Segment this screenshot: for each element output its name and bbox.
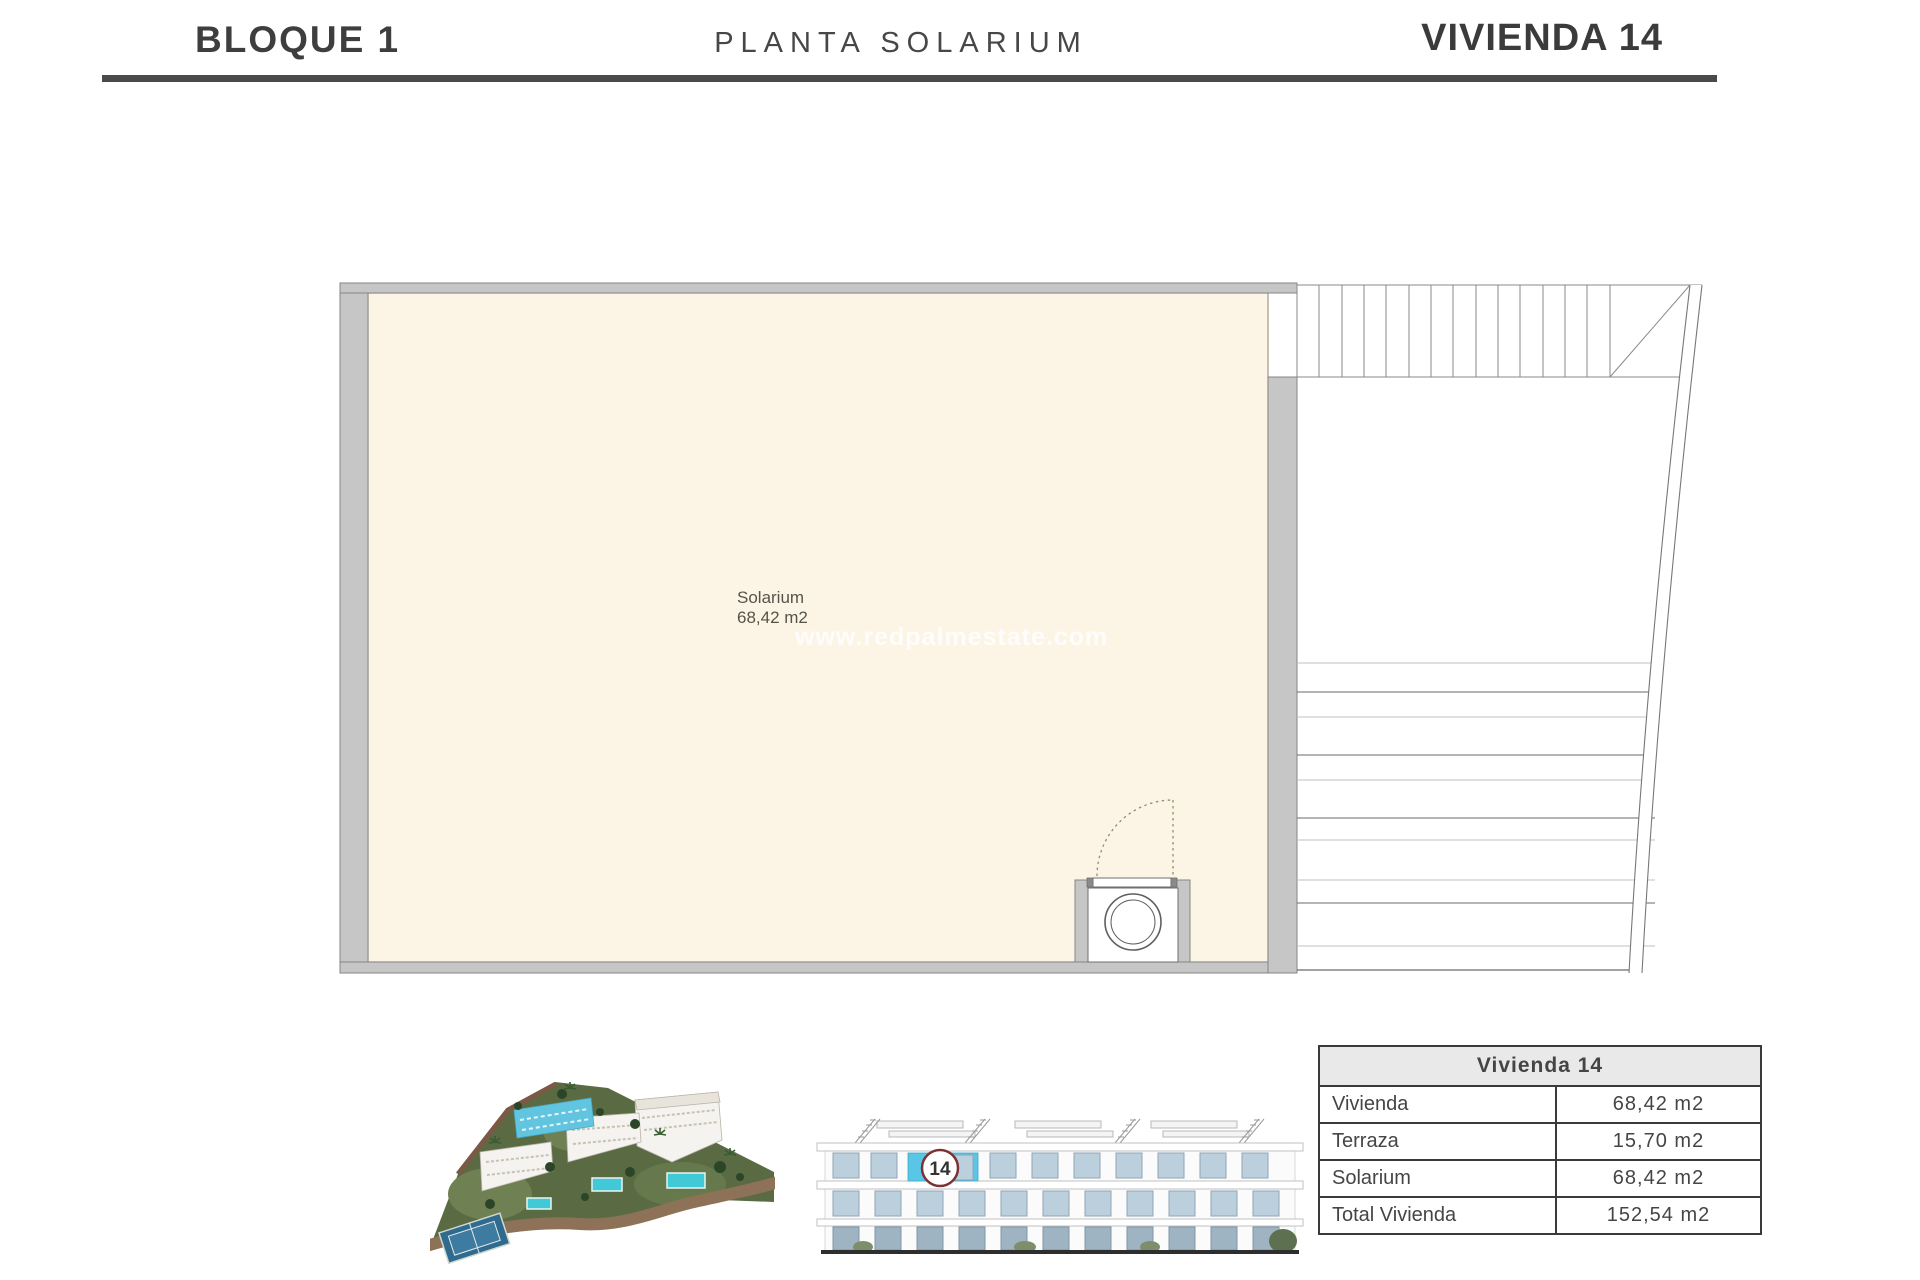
table-title: Vivienda 14	[1319, 1046, 1761, 1086]
room-label: Solarium 68,42 m2	[737, 588, 808, 627]
room-name-text: Solarium	[737, 588, 804, 607]
header-rule	[102, 75, 1717, 82]
row-label: Terraza	[1319, 1123, 1556, 1160]
unit-summary-table: Vivienda 14 Vivienda 68,42 m2 Terraza 15…	[1318, 1045, 1762, 1235]
row-label: Solarium	[1319, 1160, 1556, 1197]
row-label: Vivienda	[1319, 1086, 1556, 1123]
building-elevation: 14	[815, 1093, 1305, 1263]
row-value: 68,42 m2	[1556, 1160, 1761, 1197]
table-row: Total Vivienda 152,54 m2	[1319, 1197, 1761, 1234]
spa-alcove	[1075, 880, 1190, 962]
table-row: Vivienda 68,42 m2	[1319, 1086, 1761, 1123]
staircase-lower-flight	[1297, 663, 1655, 970]
spa-circle-outer	[1105, 894, 1161, 950]
block-title: BLOQUE 1	[195, 19, 400, 61]
row-value: 152,54 m2	[1556, 1197, 1761, 1234]
table-header-row: Vivienda 14	[1319, 1046, 1761, 1086]
floor-title: PLANTA SOLARIUM	[714, 27, 1088, 60]
watermark: www.redpalmestate.com	[795, 623, 1108, 652]
row-label: Total Vivienda	[1319, 1197, 1556, 1234]
unit-badge-number: 14	[929, 1159, 951, 1180]
curved-outer-wall	[1629, 285, 1702, 973]
row-value: 15,70 m2	[1556, 1123, 1761, 1160]
aerial-render	[430, 1072, 775, 1270]
unit-badge: 14	[922, 1150, 958, 1186]
table-row: Solarium 68,42 m2	[1319, 1160, 1761, 1197]
windows-ground	[833, 1227, 1279, 1250]
table-row: Terraza 15,70 m2	[1319, 1123, 1761, 1160]
windows-middle	[833, 1191, 1279, 1216]
roof-pergolas	[877, 1121, 1249, 1137]
row-value: 68,42 m2	[1556, 1086, 1761, 1123]
staircase-upper-flight	[1297, 285, 1702, 377]
ground-line	[821, 1250, 1299, 1254]
unit-title: VIVIENDA 14	[1421, 17, 1663, 60]
